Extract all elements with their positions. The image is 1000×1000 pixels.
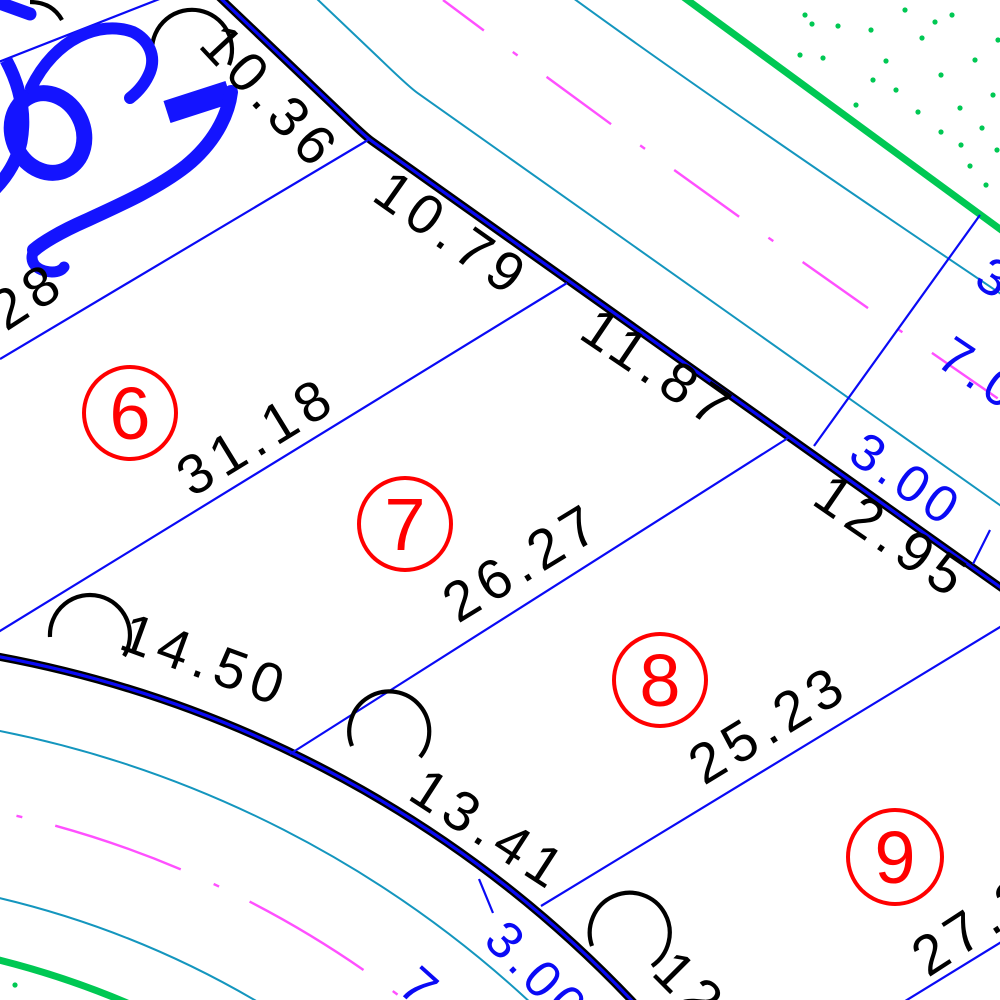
svg-text:6: 6 [109, 372, 150, 455]
svg-text:7: 7 [384, 483, 425, 566]
svg-text:9: 9 [874, 816, 915, 899]
svg-text:8: 8 [639, 639, 680, 722]
